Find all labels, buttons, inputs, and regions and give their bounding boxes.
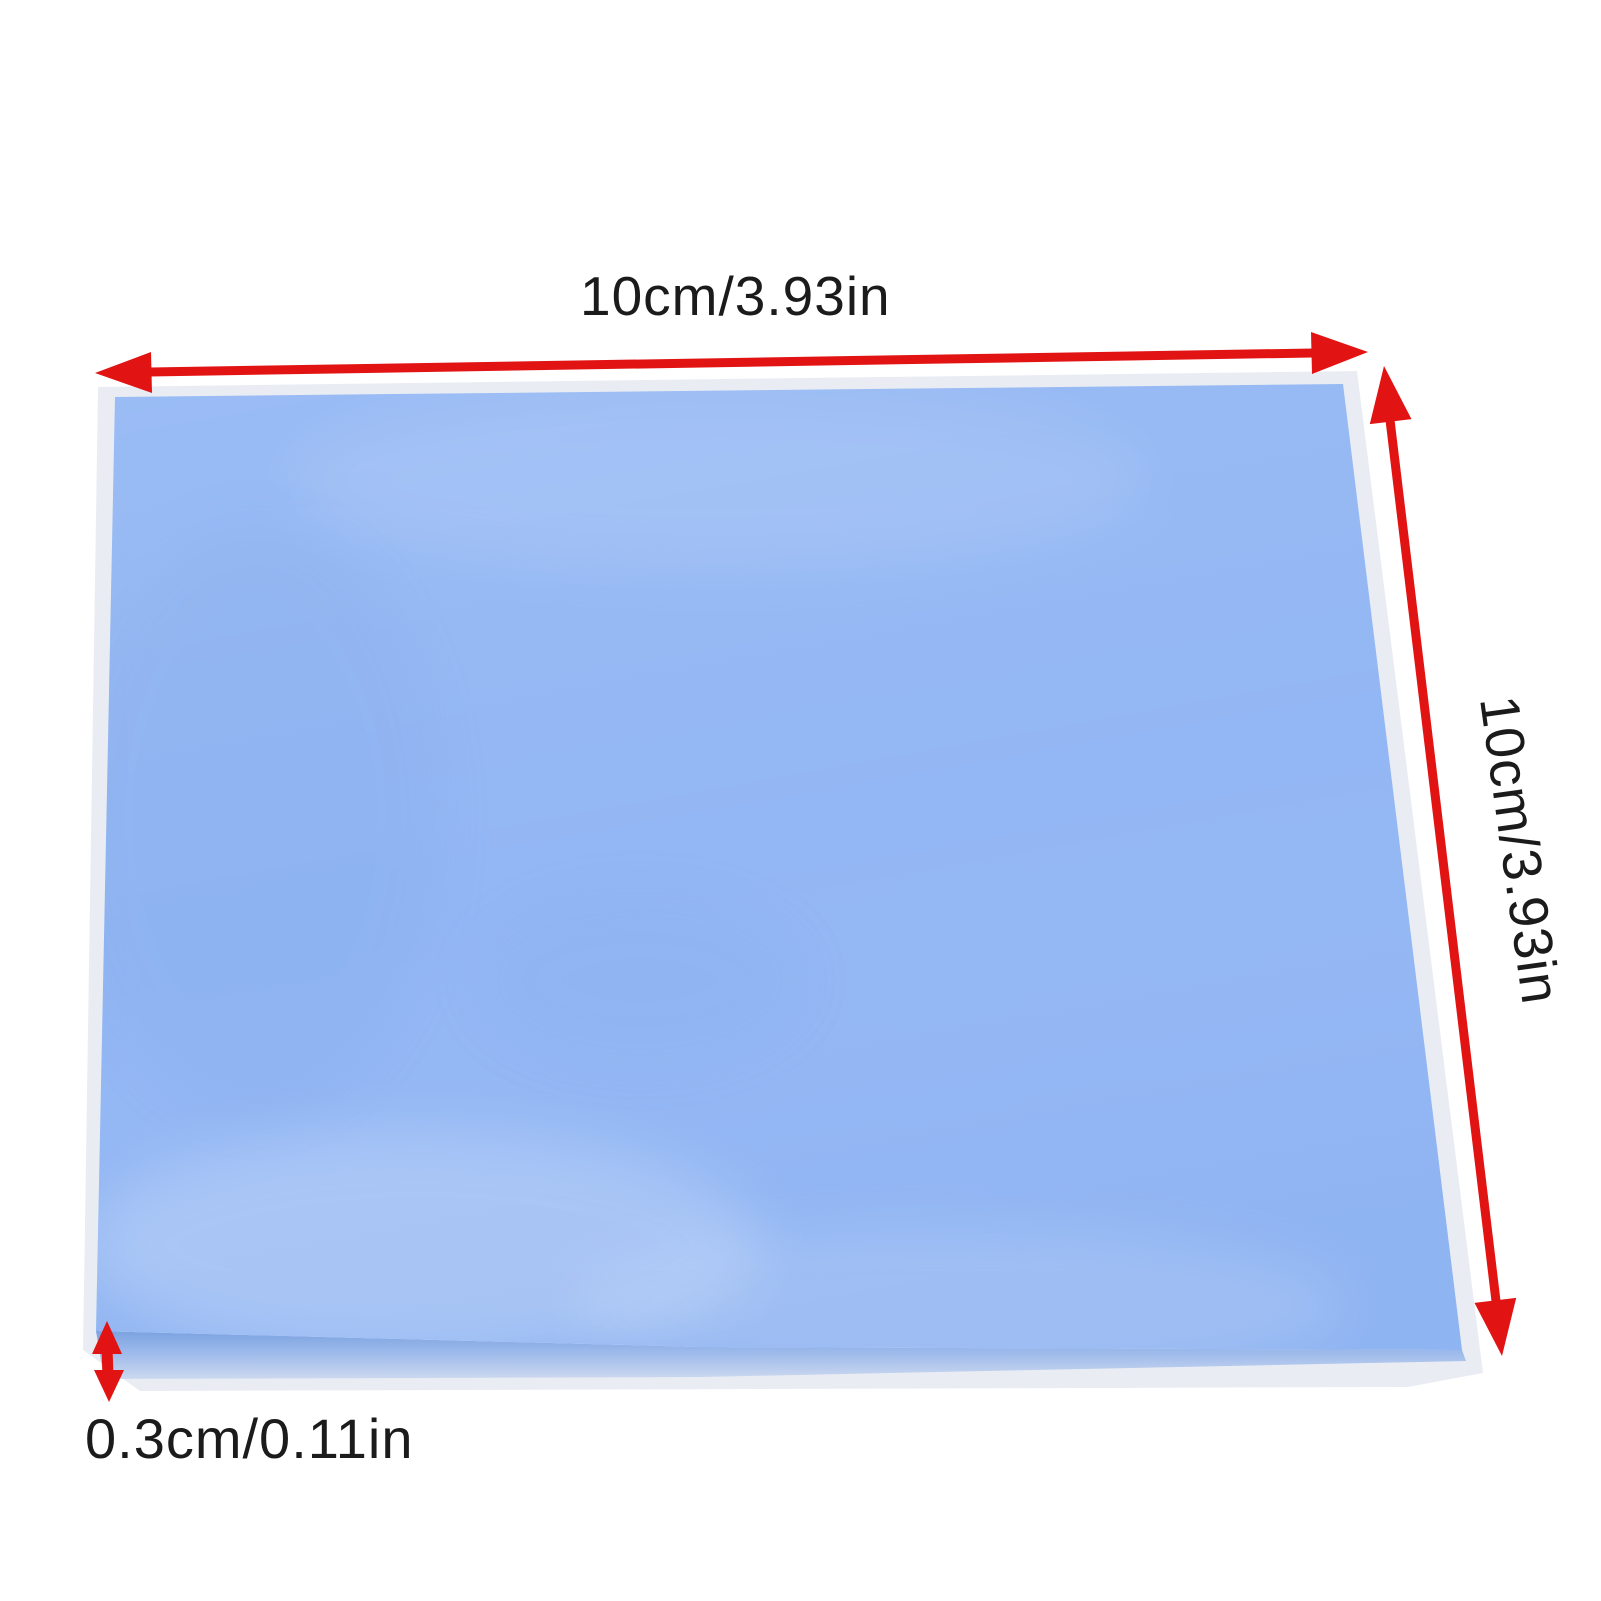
product-dimension-image: 10cm/3.93in 10cm/3.93in 0.3cm/0.11in [0,0,1601,1601]
width-arrow-shaft [150,353,1313,372]
height-arrow-bottom-head [1475,1298,1517,1356]
dimension-illustration [0,0,1601,1601]
width-label: 10cm/3.93in [580,266,891,327]
thickness-label: 0.3cm/0.11in [85,1408,413,1470]
height-arrow-top-head [1370,366,1412,424]
pad-sheen [60,360,1500,1400]
thickness-arrow-bottom-head [94,1370,124,1402]
width-arrow-right-head [1311,332,1368,374]
